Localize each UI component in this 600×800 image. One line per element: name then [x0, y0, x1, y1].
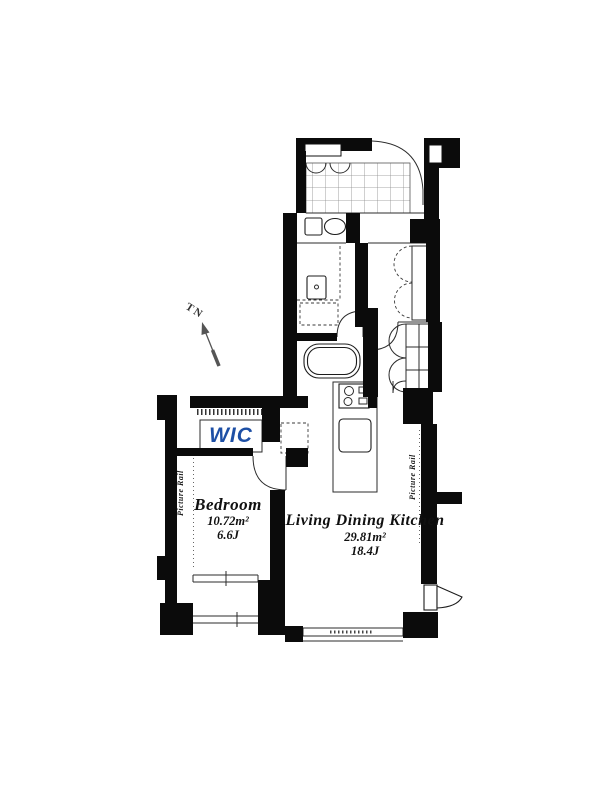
bathtub-icon — [304, 344, 360, 378]
floor-plan-drawing — [0, 0, 600, 800]
ldk-area-sqm: 29.81m² — [281, 530, 449, 544]
picture-rail-label-right: Picture Rail — [408, 454, 417, 500]
entrance-tile-floor — [306, 163, 426, 243]
compass-arrow-icon — [202, 322, 220, 366]
floor-plan: Bedroom 10.72m² 6.6J Living Dining Kitch… — [0, 0, 600, 800]
balcony-door-icon — [424, 585, 462, 610]
picture-rail-label-left: Picture Rail — [176, 470, 185, 516]
walls — [157, 138, 462, 642]
bedroom-area-sqm: 10.72m² — [163, 514, 293, 528]
hallway-closet-upper — [394, 246, 430, 322]
washbasin-icon — [307, 276, 326, 299]
bedroom-area-tatami: 6.6J — [163, 528, 293, 542]
bedroom-door-icon — [253, 456, 286, 490]
hallway-closet-lower — [389, 324, 432, 392]
toilet-icon — [297, 218, 346, 243]
ldk-area-tatami: 18.4J — [281, 544, 449, 558]
ldk-name: Living Dining Kitchen — [281, 511, 449, 530]
ldk-label: Living Dining Kitchen 29.81m² 18.4J — [281, 511, 449, 558]
wic-label: WIC — [200, 420, 262, 452]
sink-icon — [339, 419, 371, 452]
